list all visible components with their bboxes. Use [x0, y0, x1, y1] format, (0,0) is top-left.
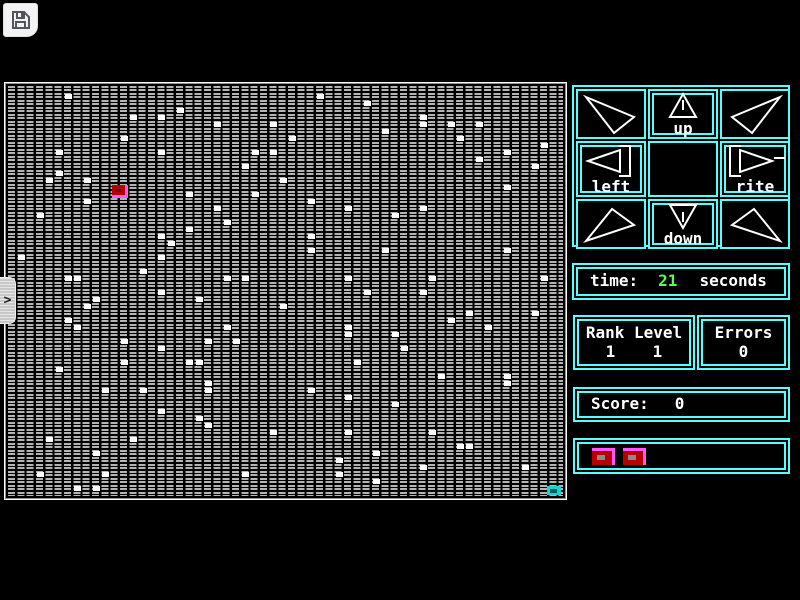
dot-cell: [65, 94, 72, 99]
dot-cell: [140, 388, 147, 393]
dot-cell: [429, 430, 436, 435]
dot-cell: [205, 381, 212, 386]
dot-cell: [46, 437, 53, 442]
dot-cell: [270, 150, 277, 155]
dot-cell: [158, 409, 165, 414]
arrow-down-left-icon: [578, 201, 644, 247]
dot-cell: [158, 115, 165, 120]
player-cell: [112, 185, 128, 198]
dot-cell: [345, 332, 352, 337]
arrow-right-icon: [722, 143, 788, 179]
dot-cell: [382, 248, 389, 253]
dot-cell: [84, 199, 91, 204]
dir-button-center[interactable]: [648, 141, 718, 197]
dot-cell: [242, 164, 249, 169]
dot-cell: [214, 206, 221, 211]
dot-cell: [158, 150, 165, 155]
dot-cell: [205, 388, 212, 393]
dir-button-down-left[interactable]: [576, 199, 646, 249]
dot-cell: [186, 227, 193, 232]
dir-button-down[interactable]: down: [648, 199, 718, 249]
dot-cell: [158, 255, 165, 260]
floppy-disk-icon: [10, 9, 32, 31]
dir-button-up-right[interactable]: [720, 89, 790, 139]
dot-cell: [308, 388, 315, 393]
dot-cell: [252, 192, 259, 197]
score-value: 0: [675, 395, 685, 413]
dot-cell: [485, 325, 492, 330]
dot-cell: [504, 185, 511, 190]
dot-cell: [345, 206, 352, 211]
dot-cell: [233, 339, 240, 344]
dot-cell: [280, 304, 287, 309]
dot-cell: [308, 199, 315, 204]
dot-cell: [373, 479, 380, 484]
arrow-up-left-icon: [578, 91, 644, 137]
errors-value: 0: [739, 343, 749, 361]
dot-cell: [270, 122, 277, 127]
dot-cell: [532, 164, 539, 169]
dot-cell: [336, 458, 343, 463]
dot-cell: [46, 178, 53, 183]
dot-cell: [420, 206, 427, 211]
dot-cell: [541, 276, 548, 281]
dot-cell: [186, 192, 193, 197]
life-indicator: [623, 448, 646, 465]
time-label: time:: [590, 272, 638, 290]
rank-value: 1: [606, 343, 616, 361]
dot-cell: [457, 136, 464, 141]
dir-button-down-right[interactable]: [720, 199, 790, 249]
dot-cell: [224, 325, 231, 330]
dot-cell: [242, 276, 249, 281]
dot-cell: [37, 472, 44, 477]
dot-cell: [504, 381, 511, 386]
dot-cell: [522, 465, 529, 470]
dir-button-left-label: left: [592, 179, 631, 195]
dot-cell: [93, 297, 100, 302]
direction-pad: up left rite: [572, 85, 790, 247]
dot-cell: [121, 339, 128, 344]
dot-cell: [84, 178, 91, 183]
dot-cell: [336, 472, 343, 477]
dot-cell: [429, 276, 436, 281]
dot-cell: [476, 122, 483, 127]
dot-cell: [84, 304, 91, 309]
chevron-right-icon: >: [4, 294, 12, 307]
dot-cell: [196, 297, 203, 302]
rank-level-panel: Rank Level 1 1: [573, 315, 695, 370]
dot-cell: [382, 129, 389, 134]
dot-cell: [56, 150, 63, 155]
dot-cell: [186, 360, 193, 365]
dot-cell: [65, 276, 72, 281]
dir-button-up-left[interactable]: [576, 89, 646, 139]
dot-cell: [65, 318, 72, 323]
time-panel: time: 21 seconds: [572, 263, 790, 300]
dot-cell: [504, 248, 511, 253]
dot-cell: [364, 290, 371, 295]
dot-cell: [541, 143, 548, 148]
dot-cell: [74, 486, 81, 491]
dot-cell: [18, 255, 25, 260]
dot-cell: [392, 402, 399, 407]
dir-button-up-label: up: [673, 121, 692, 137]
dot-cell: [504, 150, 511, 155]
arrow-up-icon: [650, 91, 716, 121]
dot-cell: [420, 465, 427, 470]
dot-cell: [466, 311, 473, 316]
dot-cell: [345, 430, 352, 435]
dot-cell: [364, 101, 371, 106]
arrow-up-right-icon: [722, 91, 788, 137]
dot-cell: [373, 451, 380, 456]
playfield[interactable]: [4, 82, 567, 500]
save-button[interactable]: [3, 3, 38, 37]
dir-button-rite[interactable]: rite: [720, 141, 790, 197]
dot-cell: [345, 325, 352, 330]
dir-button-left[interactable]: left: [576, 141, 646, 197]
dot-cell: [196, 416, 203, 421]
dot-cell: [224, 220, 231, 225]
dot-cell: [354, 360, 361, 365]
dir-button-rite-label: rite: [736, 179, 775, 195]
dot-cell: [448, 318, 455, 323]
dot-cell: [56, 367, 63, 372]
dot-cell: [466, 444, 473, 449]
dot-cell: [242, 472, 249, 477]
dot-cell: [102, 472, 109, 477]
dot-cell: [308, 234, 315, 239]
dot-cell: [345, 395, 352, 400]
dot-cell: [270, 430, 277, 435]
dot-cell: [345, 276, 352, 281]
dot-cell: [420, 122, 427, 127]
playfield-grid: [8, 86, 563, 496]
game-screen: > up left: [0, 0, 800, 600]
dot-cell: [74, 276, 81, 281]
target-cell: [547, 486, 561, 495]
dot-cell: [93, 486, 100, 491]
dot-cell: [401, 346, 408, 351]
dot-cell: [37, 213, 44, 218]
dot-cell: [205, 423, 212, 428]
dot-cell: [532, 311, 539, 316]
dot-cell: [196, 360, 203, 365]
dot-cell: [140, 269, 147, 274]
dot-cell: [308, 248, 315, 253]
arrow-down-right-icon: [722, 201, 788, 247]
time-value: 21: [658, 272, 677, 290]
dot-cell: [252, 150, 259, 155]
arrow-left-icon: [582, 143, 640, 179]
dot-cell: [93, 451, 100, 456]
lives-panel: [573, 438, 790, 474]
score-panel: Score: 0: [573, 387, 790, 422]
dir-button-up[interactable]: up: [648, 89, 718, 139]
dot-cell: [214, 122, 221, 127]
errors-panel: Errors 0: [697, 315, 790, 370]
dot-cell: [280, 178, 287, 183]
dot-cell: [158, 290, 165, 295]
dot-cell: [56, 171, 63, 176]
time-unit-label: seconds: [699, 272, 766, 290]
errors-label: Errors: [715, 324, 773, 342]
score-label: Score:: [591, 395, 649, 413]
dot-cell: [392, 213, 399, 218]
dot-cell: [158, 346, 165, 351]
dot-cell: [438, 374, 445, 379]
dot-cell: [121, 136, 128, 141]
dot-cell: [121, 360, 128, 365]
dot-cell: [392, 332, 399, 337]
dot-cell: [504, 374, 511, 379]
dot-cell: [102, 388, 109, 393]
life-indicator: [592, 448, 615, 465]
dot-cell: [317, 94, 324, 99]
dot-cell: [130, 437, 137, 442]
dir-button-down-label: down: [664, 231, 703, 247]
dot-cell: [177, 108, 184, 113]
level-value: 1: [653, 343, 663, 361]
arrow-down-icon: [650, 201, 716, 231]
dot-cell: [74, 325, 81, 330]
dot-cell: [457, 444, 464, 449]
rank-level-label: Rank Level: [586, 324, 682, 342]
dot-cell: [289, 136, 296, 141]
dot-cell: [130, 115, 137, 120]
dot-cell: [158, 234, 165, 239]
dot-cell: [205, 339, 212, 344]
dot-cell: [476, 157, 483, 162]
dot-cell: [420, 115, 427, 120]
dot-cell: [168, 241, 175, 246]
side-panel-tab[interactable]: >: [0, 277, 16, 324]
dot-cell: [420, 290, 427, 295]
dot-cell: [224, 276, 231, 281]
dot-cell: [448, 122, 455, 127]
